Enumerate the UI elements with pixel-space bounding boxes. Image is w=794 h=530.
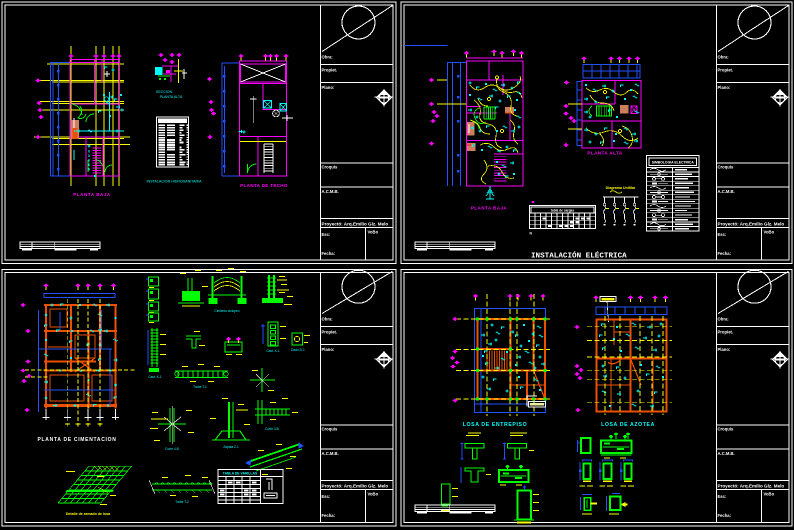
svg-text:Fecha:: Fecha: (322, 251, 336, 256)
svg-text:tabla de cargas: tabla de cargas (551, 209, 574, 213)
svg-text:Plano:: Plano: (718, 347, 731, 352)
svg-text:Corte 4-B: Corte 4-B (165, 447, 179, 451)
svg-text:VoBo: VoBo (764, 230, 775, 235)
svg-text:PLANTA DE CIMENTACION: PLANTA DE CIMENTACION (37, 437, 116, 443)
svg-text:Cast. K-1: Cast. K-1 (148, 375, 162, 379)
svg-text:Obra:: Obra: (718, 55, 729, 60)
svg-text:INSTALACIÓN ELÉCTRICA: INSTALACIÓN ELÉCTRICA (531, 251, 627, 261)
svg-text:A.C.M.B.: A.C.M.B. (322, 451, 339, 456)
svg-text:VoBo: VoBo (368, 230, 379, 235)
svg-text:Croquis: Croquis (322, 427, 338, 432)
svg-text:Plano:: Plano: (322, 85, 335, 90)
svg-text:Obra:: Obra: (322, 55, 333, 60)
svg-text:INSTALACION HIDROSANITARIA: INSTALACION HIDROSANITARIA (147, 179, 203, 183)
svg-text:A.C.M.B.: A.C.M.B. (718, 451, 735, 456)
svg-text:Esc:: Esc: (718, 232, 727, 237)
svg-text:Esc:: Esc: (322, 494, 331, 499)
svg-text:A.C.M.B.: A.C.M.B. (322, 189, 339, 194)
svg-text:VoBo: VoBo (764, 492, 775, 497)
svg-text:SIMBOLOGIA ELECTRICA: SIMBOLOGIA ELECTRICA (652, 160, 695, 164)
svg-text:Obra:: Obra: (322, 317, 333, 322)
svg-text:Cast. K-1: Cast. K-1 (266, 349, 280, 353)
svg-text:PLANTA BAJA: PLANTA BAJA (73, 192, 111, 197)
svg-text:Proyectó: Arq.Emilio Glz. Melo: Proyectó: Arq.Emilio Glz. Melo (322, 484, 389, 489)
svg-text:LOSA DE AZOTEA: LOSA DE AZOTEA (601, 422, 655, 428)
svg-text:Cimiento ciclopeo: Cimiento ciclopeo (214, 309, 239, 313)
svg-text:Esc:: Esc: (322, 232, 331, 237)
svg-text:PLANTA DE TECHO: PLANTA DE TECHO (240, 183, 288, 188)
svg-text:Proyectó: Arq.Emilio Glz. Melo: Proyectó: Arq.Emilio Glz. Melo (718, 222, 785, 227)
svg-text:Zapata Z-1: Zapata Z-1 (223, 445, 239, 449)
svg-text:VoBo: VoBo (368, 492, 379, 497)
svg-text:Corte 3-B: Corte 3-B (265, 427, 279, 431)
svg-text:Obra:: Obra: (718, 317, 729, 322)
svg-text:Trabe T-2: Trabe T-2 (175, 500, 189, 504)
svg-text:PLANTA ALTA: PLANTA ALTA (587, 151, 622, 156)
svg-text:Propiet.: Propiet. (322, 330, 338, 335)
svg-text:Trabe T-1: Trabe T-1 (193, 385, 207, 389)
svg-text:Propiet.: Propiet. (322, 68, 338, 73)
svg-text:Esc:: Esc: (718, 494, 727, 499)
svg-text:A.C.M.B.: A.C.M.B. (718, 189, 735, 194)
svg-text:Proyectó: Arq.Emilio Glz. Melo: Proyectó: Arq.Emilio Glz. Melo (718, 484, 785, 489)
svg-text:Diagrama Unifilar: Diagrama Unifilar (606, 186, 636, 190)
svg-text:Fecha:: Fecha: (718, 513, 732, 518)
svg-text:TABLA DE VARILLAS: TABLA DE VARILLAS (223, 472, 258, 476)
svg-text:LOSA DE ENTREPISO: LOSA DE ENTREPISO (463, 422, 527, 428)
svg-text:Fecha:: Fecha: (322, 513, 336, 518)
svg-text:N: N (530, 232, 533, 236)
svg-text:PLANTA ALTA: PLANTA ALTA (160, 95, 183, 99)
svg-text:Croquis: Croquis (718, 165, 734, 170)
svg-text:Plano:: Plano: (718, 85, 731, 90)
svg-text:SECCION: SECCION (156, 90, 173, 94)
svg-text:PLANTA BAJA: PLANTA BAJA (471, 206, 508, 211)
svg-text:Propiet.: Propiet. (718, 68, 734, 73)
svg-text:Propiet.: Propiet. (718, 330, 734, 335)
svg-text:Croquis: Croquis (322, 165, 338, 170)
svg-text:Croquis: Croquis (718, 427, 734, 432)
svg-text:Proyectó: Arq.Emilio Glz. Melo: Proyectó: Arq.Emilio Glz. Melo (322, 222, 389, 227)
svg-text:Detalle de armado de losa: Detalle de armado de losa (66, 512, 111, 516)
svg-text:Dado D-1: Dado D-1 (291, 348, 305, 352)
svg-text:Plano:: Plano: (322, 347, 335, 352)
svg-text:Fecha:: Fecha: (718, 251, 732, 256)
